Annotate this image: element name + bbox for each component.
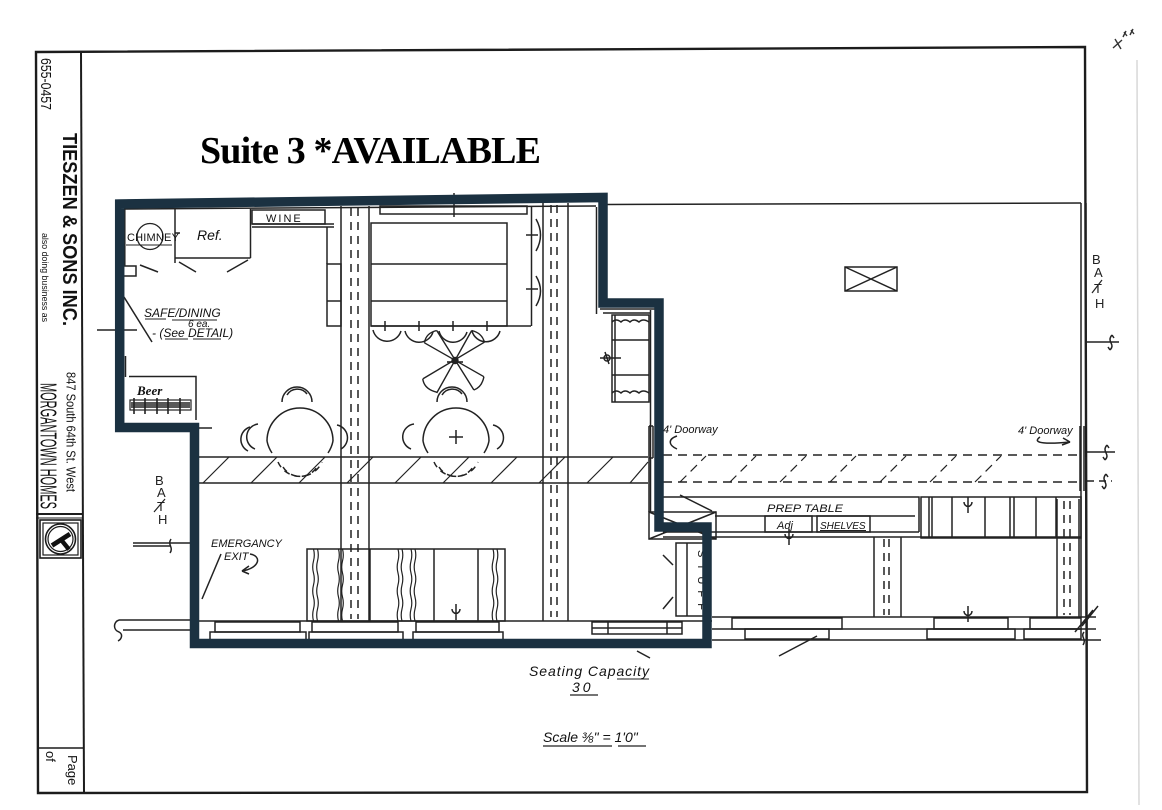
svg-text:A: A	[1094, 265, 1103, 280]
svg-text:- (See DETAIL): - (See DETAIL)	[152, 326, 233, 340]
svg-text:847 South 64th St. West: 847 South 64th St. West	[64, 372, 78, 492]
svg-text:Adj: Adj	[776, 520, 793, 532]
svg-text:4' Doorway: 4' Doorway	[1018, 425, 1074, 437]
svg-text:A: A	[157, 485, 166, 500]
svg-text:CHIMNEY: CHIMNEY	[127, 232, 180, 244]
svg-text:WINE: WINE	[266, 213, 303, 225]
svg-text:SAFE/DINING: SAFE/DINING	[144, 306, 221, 320]
svg-text:Suite 3 *AVAILABLE: Suite 3 *AVAILABLE	[200, 130, 541, 172]
svg-text:655-0457: 655-0457	[37, 58, 54, 110]
svg-text:PREP TABLE: PREP TABLE	[767, 503, 844, 515]
svg-text:Scale ⅜" = 1'0": Scale ⅜" = 1'0"	[543, 729, 639, 745]
svg-text:MORGANTOWN HOMES: MORGANTOWN HOMES	[36, 383, 62, 509]
svg-text:also doing business as: also doing business as	[39, 233, 50, 322]
svg-text:H: H	[1095, 296, 1104, 311]
svg-text:Page: Page	[65, 755, 80, 785]
svg-text:Beer: Beer	[136, 383, 163, 398]
svg-text:Ref.: Ref.	[197, 227, 223, 243]
svg-text:Seating Capacity: Seating Capacity	[529, 663, 650, 679]
svg-text:EXIT: EXIT	[224, 551, 250, 563]
svg-text:of: of	[43, 751, 58, 762]
svg-text:4' Doorway: 4' Doorway	[663, 424, 719, 436]
svg-text:30: 30	[572, 679, 594, 695]
svg-text:EMERGANCY: EMERGANCY	[211, 538, 283, 550]
svg-text:TIESZEN & SONS INC.: TIESZEN & SONS INC.	[58, 133, 80, 326]
svg-text:T: T	[1094, 281, 1102, 296]
svg-text:H: H	[158, 512, 167, 527]
